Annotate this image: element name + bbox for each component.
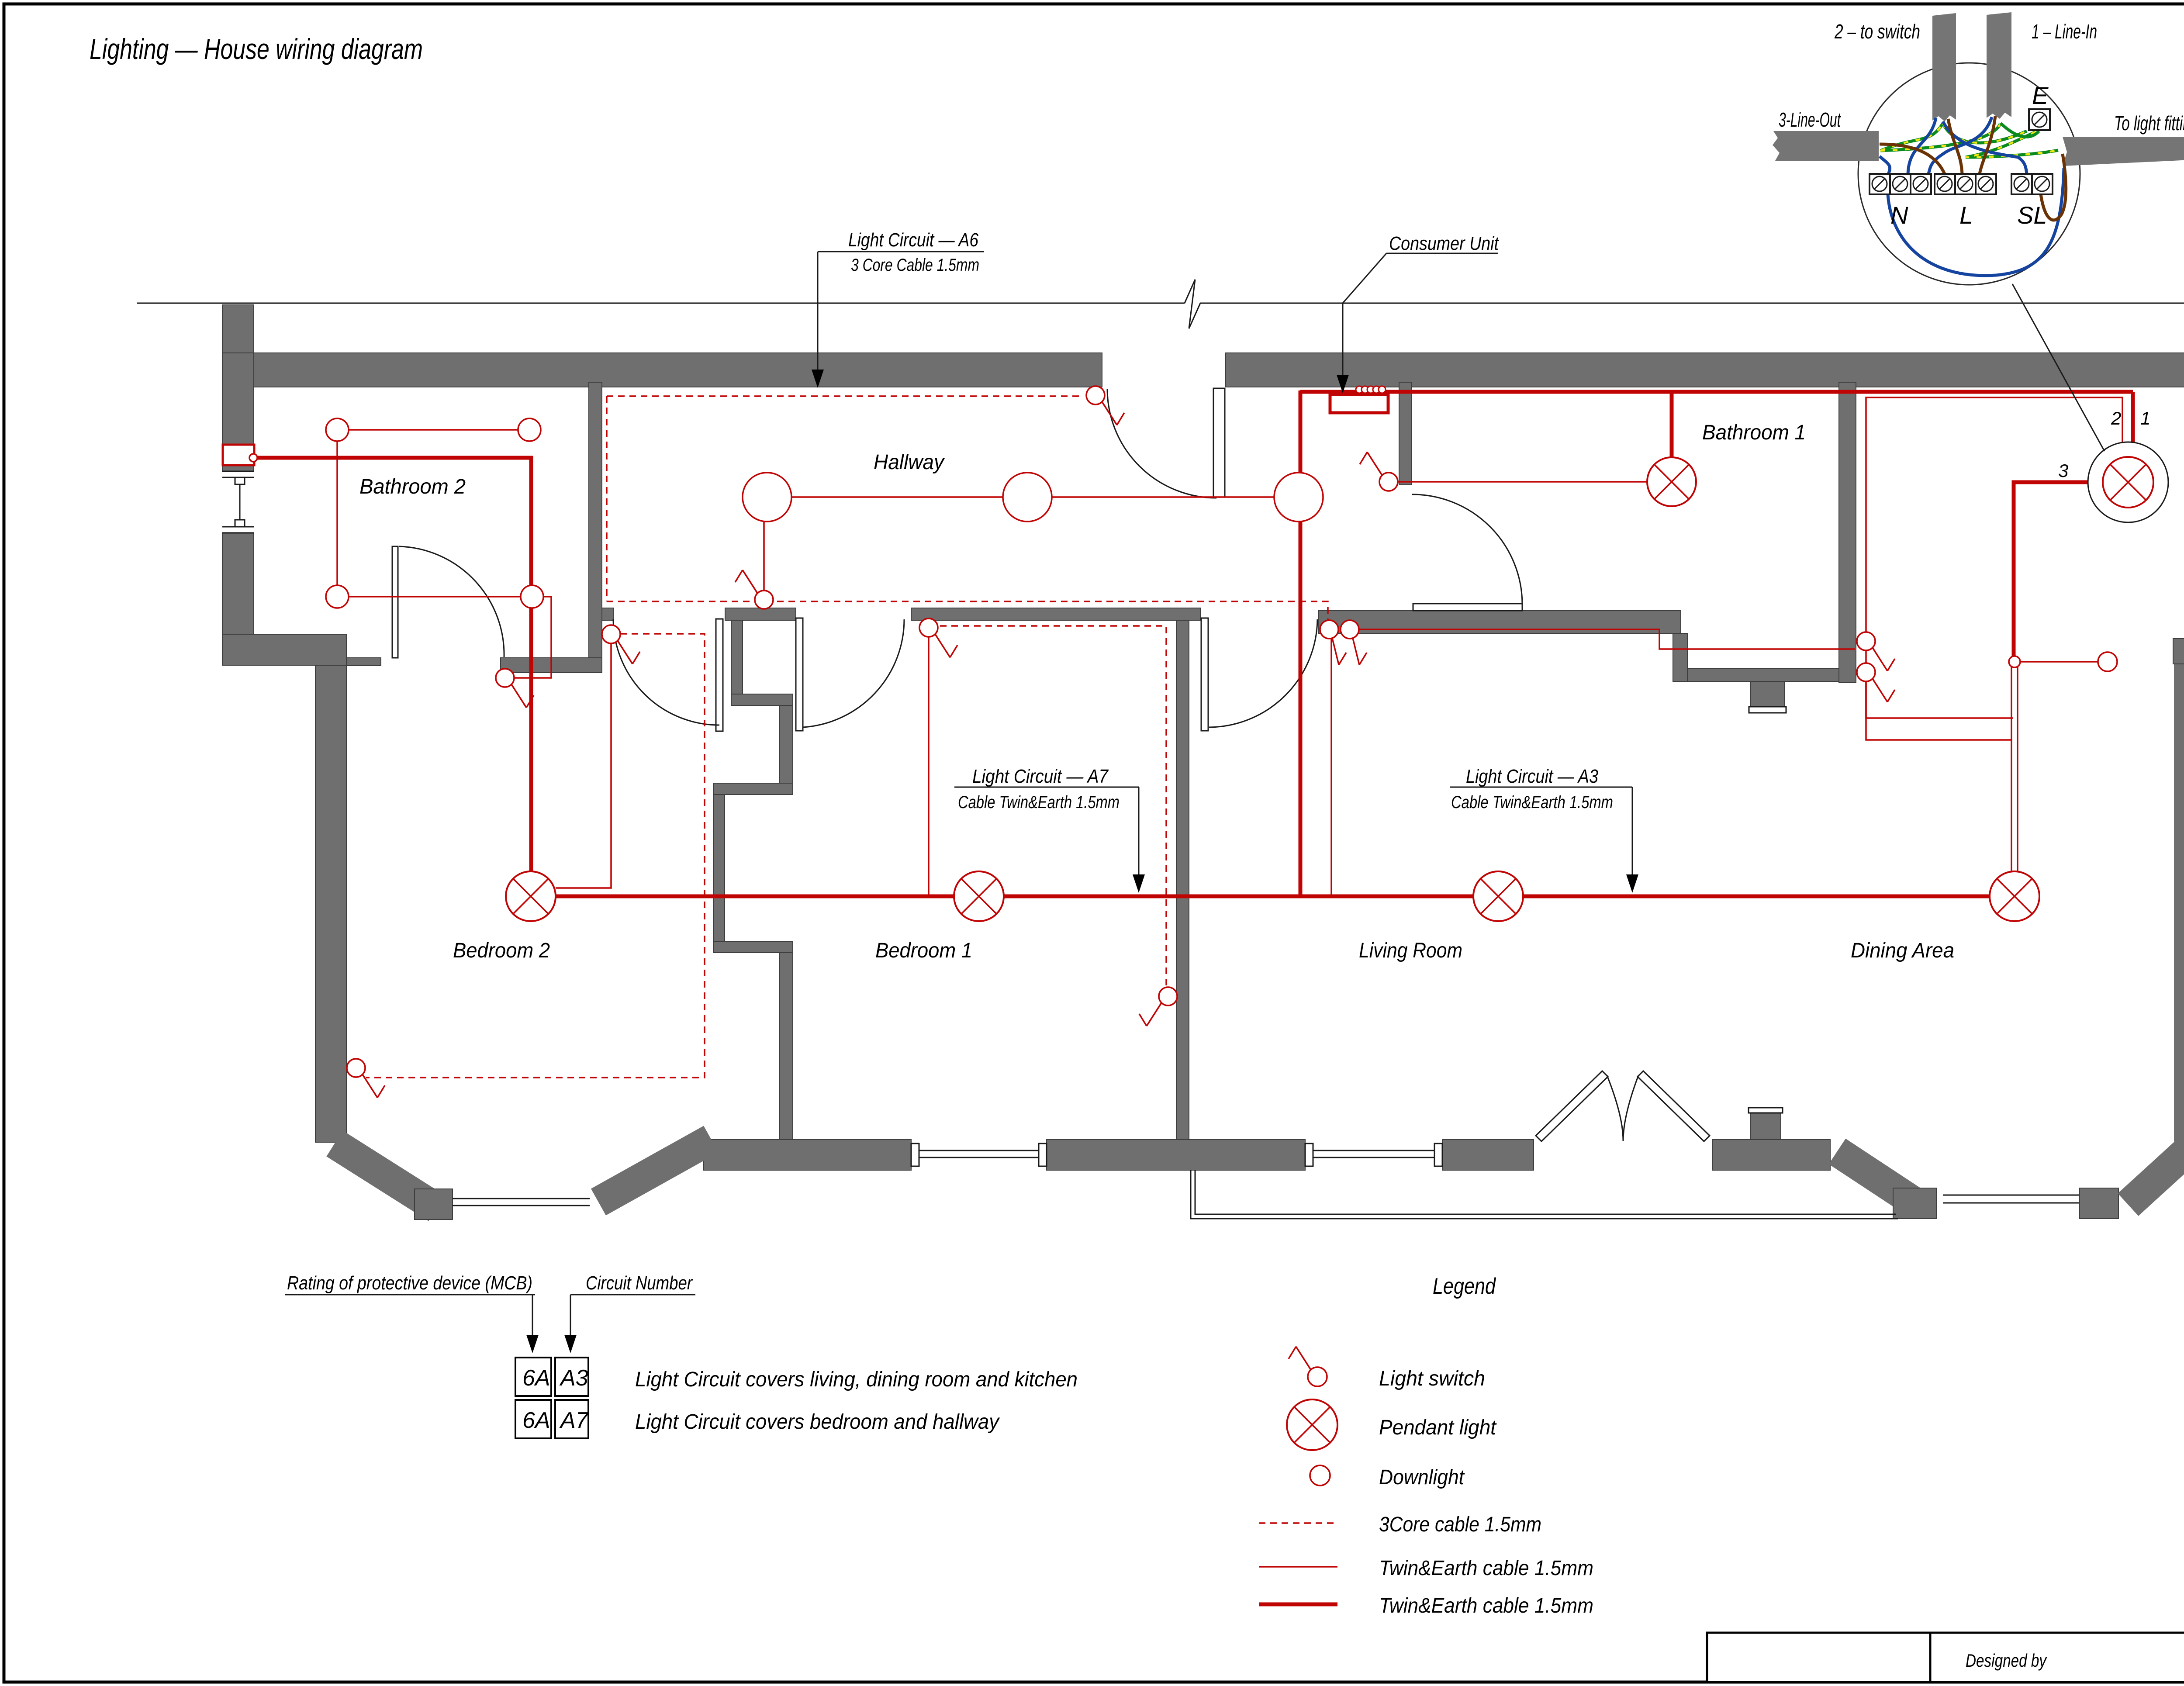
svg-text:Twin&Earth cable 1.5mm: Twin&Earth cable 1.5mm (1379, 1557, 1593, 1580)
svg-text:Circuit Number: Circuit Number (586, 1272, 693, 1294)
svg-text:Bathroom 2: Bathroom 2 (359, 475, 466, 498)
svg-text:N: N (1890, 201, 1908, 229)
svg-text:A3: A3 (559, 1365, 588, 1391)
svg-text:Legend: Legend (1433, 1274, 1496, 1299)
svg-text:Bedroom 2: Bedroom 2 (453, 939, 550, 962)
svg-text:Light Circuit covers living, d: Light Circuit covers living, dining room… (635, 1368, 1078, 1391)
svg-text:Pendant light: Pendant light (1379, 1416, 1497, 1439)
svg-text:Bedroom 1: Bedroom 1 (875, 939, 972, 962)
svg-text:Downlight: Downlight (1379, 1466, 1465, 1489)
svg-text:Light Circuit — A3: Light Circuit — A3 (1466, 766, 1598, 787)
svg-text:Light Circuit covers bedroom a: Light Circuit covers bedroom and hallway (635, 1410, 1000, 1434)
svg-text:1: 1 (2140, 408, 2150, 428)
svg-text:Light Circuit — A6: Light Circuit — A6 (848, 229, 978, 251)
svg-text:3-Line-Out: 3-Line-Out (1779, 108, 1841, 131)
svg-text:Consumer Unit: Consumer Unit (1389, 233, 1500, 254)
svg-text:6A: 6A (522, 1365, 550, 1391)
svg-text:3: 3 (2058, 460, 2068, 481)
svg-text:2 – to switch: 2 – to switch (1834, 20, 1920, 43)
svg-text:Living Room: Living Room (1359, 939, 1462, 962)
svg-text:Lighting — House wiring diagra: Lighting — House wiring diagram (90, 33, 423, 65)
svg-text:Twin&Earth cable 1.5mm: Twin&Earth cable 1.5mm (1379, 1594, 1593, 1617)
svg-text:Dining Area: Dining Area (1851, 939, 1954, 962)
svg-text:To light fitting: To light fitting (2114, 112, 2184, 135)
svg-text:E: E (2032, 82, 2049, 109)
svg-text:L: L (1959, 201, 1973, 229)
svg-text:Rating of protective device (M: Rating of protective device (MCB) (287, 1272, 532, 1294)
svg-text:2: 2 (2111, 408, 2121, 428)
svg-text:SL: SL (2017, 201, 2047, 229)
svg-text:6A: 6A (522, 1408, 550, 1433)
svg-text:Bathroom 1: Bathroom 1 (1702, 421, 1806, 444)
svg-text:Light Circuit — A7: Light Circuit — A7 (972, 766, 1109, 787)
svg-text:1 – Line-In: 1 – Line-In (2032, 20, 2097, 43)
svg-text:3 Core Cable 1.5mm: 3 Core Cable 1.5mm (851, 256, 979, 275)
svg-text:A7: A7 (559, 1408, 589, 1433)
svg-text:Cable Twin&Earth 1.5mm: Cable Twin&Earth 1.5mm (1451, 793, 1613, 812)
svg-text:3Core cable 1.5mm: 3Core cable 1.5mm (1379, 1513, 1541, 1536)
svg-text:Hallway: Hallway (874, 451, 945, 474)
svg-text:Designed by: Designed by (1966, 1650, 2047, 1671)
svg-text:Cable Twin&Earth 1.5mm: Cable Twin&Earth 1.5mm (958, 793, 1120, 812)
svg-text:Light switch: Light switch (1379, 1367, 1485, 1390)
